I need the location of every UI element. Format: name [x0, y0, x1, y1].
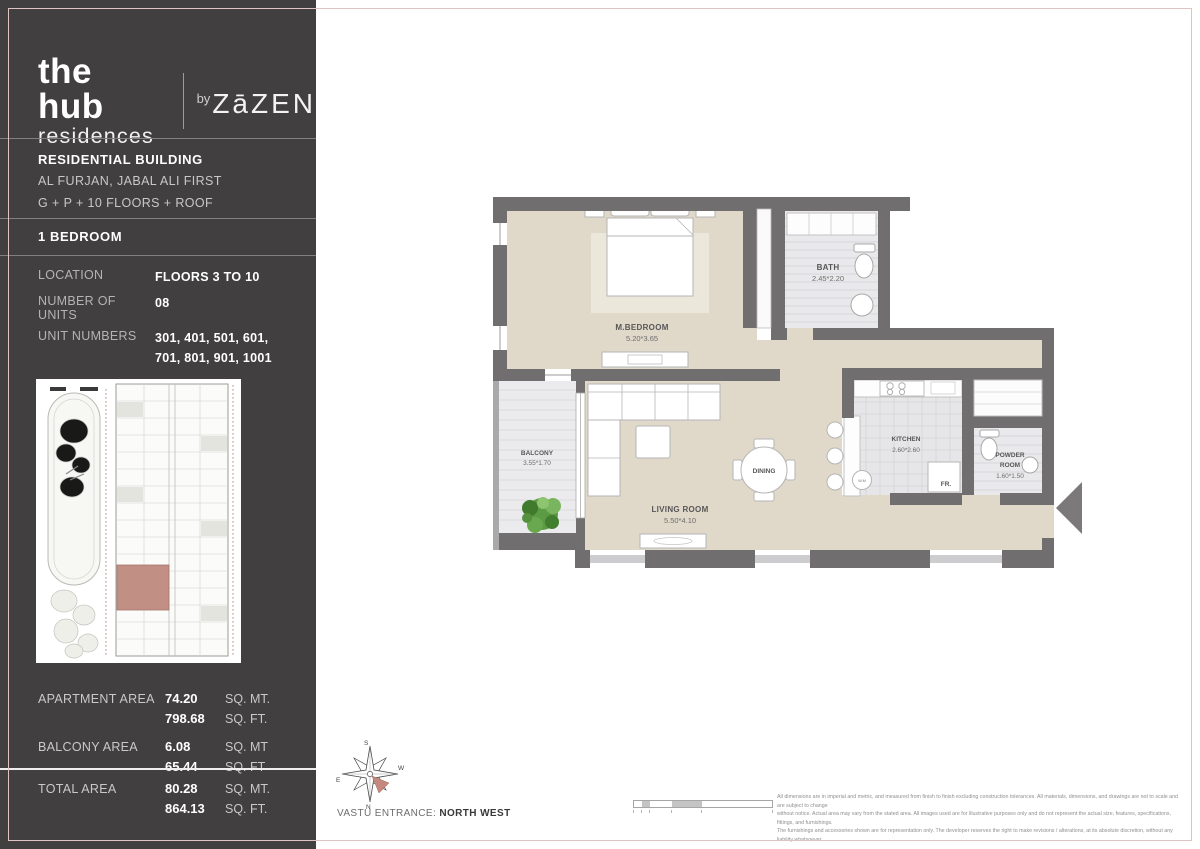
highlighted-unit — [117, 565, 169, 610]
area-row: BALCONY AREA 6.08 SQ. MT — [38, 739, 298, 759]
spec-row-units-count: NUMBER OF UNITS 08 — [38, 294, 288, 322]
logo-divider — [183, 73, 184, 129]
compass-rose: S W E N — [333, 737, 407, 811]
dresser — [602, 352, 688, 367]
area-unit: SQ. FT — [225, 760, 265, 774]
building-floors: G + P + 10 FLOORS + ROOF — [38, 196, 213, 210]
entrance-arrow — [1056, 482, 1082, 534]
tv-console — [640, 534, 706, 548]
area-unit: SQ. FT. — [225, 802, 267, 816]
compass: S W E N — [333, 737, 407, 811]
building-address: AL FURJAN, JABAL ALI FIRST — [38, 174, 222, 188]
living-dims: 5.50*4.10 — [664, 516, 696, 525]
area-value: 6.08 — [165, 739, 225, 754]
bath-label: BATH — [817, 263, 840, 272]
sidebar: the hub residences by ZāZEN RESIDENTIAL … — [0, 0, 316, 849]
area-value: 74.20 — [165, 691, 225, 706]
disclaimer: All dimensions are in imperial and metri… — [777, 793, 1187, 844]
balcony-dims: 3.55*1.70 — [523, 460, 551, 467]
sidebar-divider-1 — [0, 138, 316, 139]
floor-plan: M.BEDROOM 5.20*3.65 BATH 2.45*2.20 BALCO… — [490, 178, 1090, 600]
washer-label: W.M — [858, 479, 866, 483]
brand-line1: the hub — [38, 54, 168, 124]
area-label: TOTAL AREA — [38, 782, 165, 796]
bedroom-dims: 5.20*3.65 — [626, 334, 658, 343]
entry-closet — [974, 380, 1042, 416]
coffee-table — [636, 426, 670, 458]
balcony-plant — [522, 497, 561, 533]
scale-bar-ticks — [633, 810, 773, 813]
kitchen-dims: 2.60*2.60 — [892, 447, 920, 454]
building-title: RESIDENTIAL BUILDING — [38, 152, 203, 167]
disclaimer-line: without notice. Actual area may vary fro… — [777, 810, 1187, 827]
unit-spec-table: LOCATION FLOORS 3 TO 10 NUMBER OF UNITS … — [38, 268, 288, 375]
area-unit: SQ. MT — [225, 740, 268, 754]
unit-numbers-line2: 701, 801, 901, 1001 — [155, 351, 272, 365]
brand-name: the hub residences — [38, 54, 168, 148]
spec-value: FLOORS 3 TO 10 — [155, 268, 260, 287]
spec-row-unit-numbers: UNIT NUMBERS 301, 401, 501, 601, 701, 80… — [38, 329, 288, 368]
key-plan-graphic — [36, 379, 241, 663]
scale-bar — [633, 800, 773, 808]
balcony-label: BALCONY — [521, 450, 554, 457]
spec-value: 08 — [155, 294, 170, 322]
area-value: 798.68 — [165, 711, 225, 726]
area-unit: SQ. MT. — [225, 782, 270, 796]
kitchen-label: KITCHEN — [892, 436, 921, 443]
developer-logo: by ZāZEN — [197, 82, 316, 120]
brochure-page: the hub residences by ZāZEN RESIDENTIAL … — [0, 0, 1200, 849]
area-table: APARTMENT AREA 74.20 SQ. MT. 798.68 SQ. … — [38, 691, 298, 779]
compass-s: S — [364, 740, 369, 747]
spec-label: NUMBER OF UNITS — [38, 294, 155, 322]
spec-label: UNIT NUMBERS — [38, 329, 155, 368]
area-value: 80.28 — [165, 781, 225, 796]
disclaimer-line: The furnishings and accessories shown ar… — [777, 827, 1187, 844]
area-row: 798.68 SQ. FT. — [38, 711, 298, 731]
unit-type: 1 BEDROOM — [38, 229, 122, 244]
area-row: 864.13 SQ. FT. — [38, 801, 298, 821]
area-label: BALCONY AREA — [38, 740, 165, 754]
sidebar-divider-3 — [0, 255, 316, 256]
total-area-table: TOTAL AREA 80.28 SQ. MT. 864.13 SQ. FT. — [38, 781, 298, 821]
floor-plan-graphic: M.BEDROOM 5.20*3.65 BATH 2.45*2.20 BALCO… — [490, 178, 1090, 600]
vastu-label: VASTU ENTRANCE: — [337, 808, 436, 819]
key-plan-thumbnail — [36, 379, 241, 663]
spec-row-location: LOCATION FLOORS 3 TO 10 — [38, 268, 288, 287]
brand-line2: residences — [38, 126, 168, 148]
powder-sink — [1022, 457, 1038, 473]
area-unit: SQ. MT. — [225, 692, 270, 706]
logo-by-label: by — [197, 91, 211, 106]
powder-dims: 1.60*1.50 — [996, 473, 1024, 480]
area-row: APARTMENT AREA 74.20 SQ. MT. — [38, 691, 298, 711]
duct-shaft — [757, 209, 771, 328]
bath-sink — [851, 294, 873, 316]
fridge-label: FR. — [941, 481, 952, 488]
powder-label-1: POWDER — [995, 452, 1025, 459]
compass-e: E — [336, 777, 341, 784]
dining-label: DINING — [753, 468, 776, 475]
area-value: 65.44 — [165, 759, 225, 774]
disclaimer-line: All dimensions are in imperial and metri… — [777, 793, 1187, 810]
total-divider — [0, 768, 316, 770]
bath-dims: 2.45*2.20 — [812, 274, 844, 283]
sidebar-divider-2 — [0, 218, 316, 219]
brand-logo: the hub residences by ZāZEN — [38, 54, 316, 148]
living-label: LIVING ROOM — [651, 505, 708, 514]
spec-value: 301, 401, 501, 601, 701, 801, 901, 1001 — [155, 329, 272, 368]
area-label: APARTMENT AREA — [38, 692, 165, 706]
bath-toilet — [854, 244, 875, 278]
powder-label-2: ROOM — [1000, 462, 1020, 469]
vastu-entrance: VASTU ENTRANCE: NORTH WEST — [337, 808, 511, 819]
developer-name: ZāZEN — [212, 88, 316, 120]
bedroom-label: M.BEDROOM — [615, 323, 668, 332]
area-row: TOTAL AREA 80.28 SQ. MT. — [38, 781, 298, 801]
kitchen-counter — [854, 380, 962, 397]
area-value: 864.13 — [165, 801, 225, 816]
compass-w: W — [398, 765, 405, 772]
shower — [787, 213, 876, 235]
spec-label: LOCATION — [38, 268, 155, 287]
unit-numbers-line1: 301, 401, 501, 601, — [155, 331, 268, 345]
area-unit: SQ. FT. — [225, 712, 267, 726]
vastu-value: NORTH WEST — [439, 808, 510, 819]
balcony-rail — [493, 381, 499, 550]
